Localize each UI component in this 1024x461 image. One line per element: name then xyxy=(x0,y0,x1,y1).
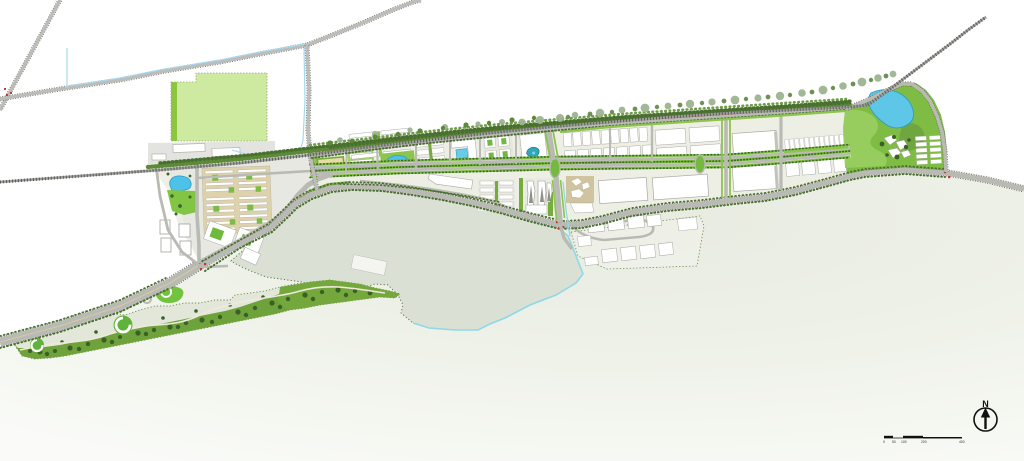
svg-text:50: 50 xyxy=(892,440,896,444)
svg-text:N: N xyxy=(982,399,989,409)
svg-text:0: 0 xyxy=(883,440,885,444)
svg-text:200: 200 xyxy=(921,440,927,444)
svg-text:400: 400 xyxy=(959,440,965,444)
svg-text:100: 100 xyxy=(901,440,907,444)
